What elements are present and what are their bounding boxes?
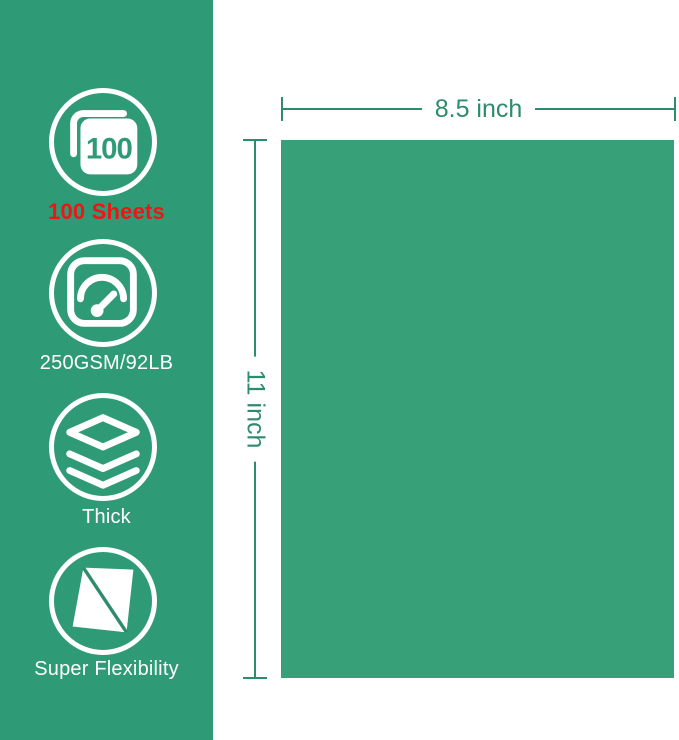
flexibility-icon-circle [49,547,157,655]
weight-label: 250GSM/92LB [0,352,213,375]
height-dimension: 11 inch [243,139,267,679]
paper-sheet [281,140,674,678]
feature-sidebar: 100 100 Sheets 250GSM/92LB Thick Super F… [0,0,213,740]
width-dimension: 8.5 inch [281,97,676,121]
flexible-sheet-icon [54,552,152,650]
width-dimension-label: 8.5 inch [422,97,536,121]
height-dimension-label: 11 inch [241,357,270,462]
layers-icon [54,398,152,496]
height-dimension-bottom-tick [243,677,267,679]
gauge-icon [54,244,152,342]
sheet-count-icon-circle: 100 [49,88,157,196]
sheet-count-badge: 100 [86,132,133,165]
flexibility-label: Super Flexibility [0,658,213,681]
height-dimension-top-tick [243,139,267,141]
sheets-100-icon: 100 [54,93,152,191]
weight-icon-circle [49,239,157,347]
thickness-icon-circle [49,393,157,501]
width-dimension-label-wrap: 8.5 inch [281,97,676,125]
thickness-label: Thick [0,506,213,529]
sheet-count-label: 100 Sheets [0,199,213,225]
